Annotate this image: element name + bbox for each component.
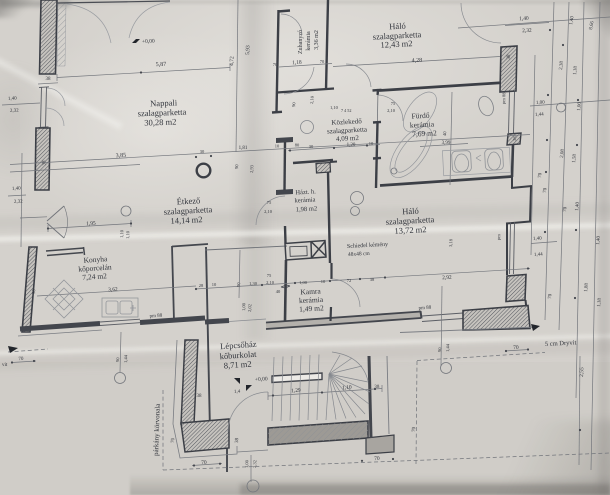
svg-text:75: 75 [267,273,272,278]
svg-text:2,08: 2,08 [560,148,566,158]
svg-text:Schiedel kémény: Schiedel kémény [347,242,388,250]
svg-text:10: 10 [275,144,280,149]
svg-text:pm 88: pm 88 [150,314,163,320]
svg-text:1,30: 1,30 [249,281,258,287]
svg-text:1,58: 1,58 [572,153,578,163]
svg-text:2,92: 2,92 [442,275,452,282]
svg-text:30: 30 [309,144,314,149]
svg-text:1,40: 1,40 [569,15,576,25]
svg-text:1,10: 1,10 [342,385,352,392]
svg-text:70: 70 [548,293,554,299]
svg-text:1,4: 1,4 [234,390,241,395]
svg-text:90: 90 [236,282,241,288]
svg-text:5,93: 5,93 [245,45,252,55]
svg-text:8,71 m2: 8,71 m2 [223,359,252,371]
svg-text:2,10: 2,10 [266,280,275,286]
svg-text:28: 28 [199,283,204,288]
svg-text:2,38: 2,38 [559,60,565,70]
svg-text:2,10: 2,10 [387,108,396,114]
svg-text:2,32: 2,32 [522,28,532,35]
svg-text:1,18: 1,18 [292,60,302,67]
svg-text:+0,00: +0,00 [255,376,268,383]
svg-text:70: 70 [273,62,278,67]
svg-text:pm 88: pm 88 [501,92,506,104]
svg-text:4,72: 4,72 [229,56,236,66]
svg-text:1,88: 1,88 [584,282,590,292]
svg-text:1,95: 1,95 [86,221,96,228]
svg-text:40: 40 [442,131,447,137]
svg-text:38: 38 [46,77,52,82]
svg-text:40: 40 [276,289,281,294]
svg-text:2,10: 2,10 [309,95,316,104]
svg-text:5 cm Dryvit: 5 cm Dryvit [545,339,577,348]
svg-text:3,36 m2: 3,36 m2 [314,30,320,50]
svg-text:1,00: 1,00 [577,101,583,111]
svg-text:1,49 m2: 1,49 m2 [299,303,324,313]
svg-text:kerámia: kerámia [306,31,312,51]
svg-text:80: 80 [295,143,300,148]
svg-text:Zuhanyzó: Zuhanyzó [298,30,304,54]
svg-text:1,18: 1,18 [597,297,603,307]
svg-text:2,93: 2,93 [249,164,255,173]
svg-text:2,02: 2,02 [247,304,253,312]
svg-text:70: 70 [201,460,207,466]
svg-text:70: 70 [538,172,544,178]
svg-text:3,62: 3,62 [108,287,118,294]
svg-text:1,00: 1,00 [536,101,545,106]
svg-text:1,18: 1,18 [573,65,579,75]
svg-text:75: 75 [267,200,272,205]
svg-text:2,10: 2,10 [264,209,273,215]
svg-text:1,10: 1,10 [125,230,131,239]
svg-text:1,00: 1,00 [299,280,308,286]
svg-text:vit: vit [2,363,8,368]
svg-text:1,44: 1,44 [535,113,544,118]
svg-text:38: 38 [370,277,375,282]
svg-text:3,85: 3,85 [116,153,127,160]
svg-text:4,09 m2: 4,09 m2 [336,134,360,143]
svg-text:8,66: 8,66 [589,20,596,30]
svg-text:38: 38 [197,394,203,399]
svg-text:3,18: 3,18 [448,238,454,247]
svg-text:12,43 m2: 12,43 m2 [380,38,413,50]
svg-text:72: 72 [347,278,352,283]
svg-text:7,24 m2: 7,24 m2 [82,271,107,282]
svg-text:48x48 cm: 48x48 cm [348,251,371,258]
svg-text:1,44: 1,44 [123,354,129,363]
svg-text:70: 70 [513,345,519,351]
svg-text:1,29: 1,29 [291,388,301,395]
svg-text:70: 70 [18,357,24,362]
svg-text:2,32: 2,32 [14,200,23,205]
svg-text:10: 10 [369,141,374,146]
svg-text:10: 10 [212,282,217,287]
svg-text:kerámia: kerámia [294,196,315,204]
svg-text:párkány körvonala: párkány körvonala [152,403,162,456]
svg-text:13,72 m2: 13,72 m2 [394,224,427,236]
svg-text:2,32: 2,32 [10,109,19,114]
svg-text:1,44: 1,44 [534,253,543,258]
svg-text:Házt. h.: Házt. h. [295,188,316,196]
svg-text:70: 70 [563,206,569,212]
svg-text:75: 75 [391,101,396,106]
svg-text:38: 38 [235,437,240,443]
svg-text:5,87: 5,87 [156,62,167,68]
svg-text:1,98 m2: 1,98 m2 [296,205,318,213]
svg-text:+0,00: +0,00 [142,39,155,45]
svg-text:4,28: 4,28 [412,58,423,65]
svg-text:30,28 m2: 30,28 m2 [144,117,176,128]
svg-text:1,40: 1,40 [533,237,542,242]
svg-text:1,40: 1,40 [519,16,529,23]
svg-text:38: 38 [507,54,512,60]
svg-text:1,40: 1,40 [575,201,581,211]
svg-text:pm: pm [496,234,501,240]
svg-text:90: 90 [234,164,239,170]
svg-text:7 4 52: 7 4 52 [341,108,351,113]
svg-text:2,55: 2,55 [579,367,585,377]
svg-text:pm 88: pm 88 [419,306,432,312]
svg-text:70: 70 [412,426,417,432]
svg-text:1,10: 1,10 [330,105,339,111]
svg-text:10: 10 [321,279,326,284]
svg-text:30: 30 [200,149,205,154]
svg-text:90: 90 [291,101,296,107]
svg-text:1,81: 1,81 [239,146,248,151]
svg-text:2,32: 2,32 [252,460,258,468]
svg-text:1,44: 1,44 [445,343,451,352]
svg-text:1,40: 1,40 [596,235,602,245]
svg-text:3,99: 3,99 [442,141,451,146]
svg-text:70: 70 [374,456,380,462]
svg-text:70: 70 [171,437,176,443]
svg-text:1,20: 1,20 [347,143,356,148]
svg-text:90: 90 [115,357,120,362]
svg-text:70: 70 [320,59,325,64]
svg-text:70: 70 [543,187,549,193]
svg-text:1,40: 1,40 [12,187,21,192]
svg-text:14,14 m2: 14,14 m2 [170,214,203,226]
svg-text:1,40: 1,40 [8,97,17,102]
svg-text:7,69 m2: 7,69 m2 [412,128,437,138]
